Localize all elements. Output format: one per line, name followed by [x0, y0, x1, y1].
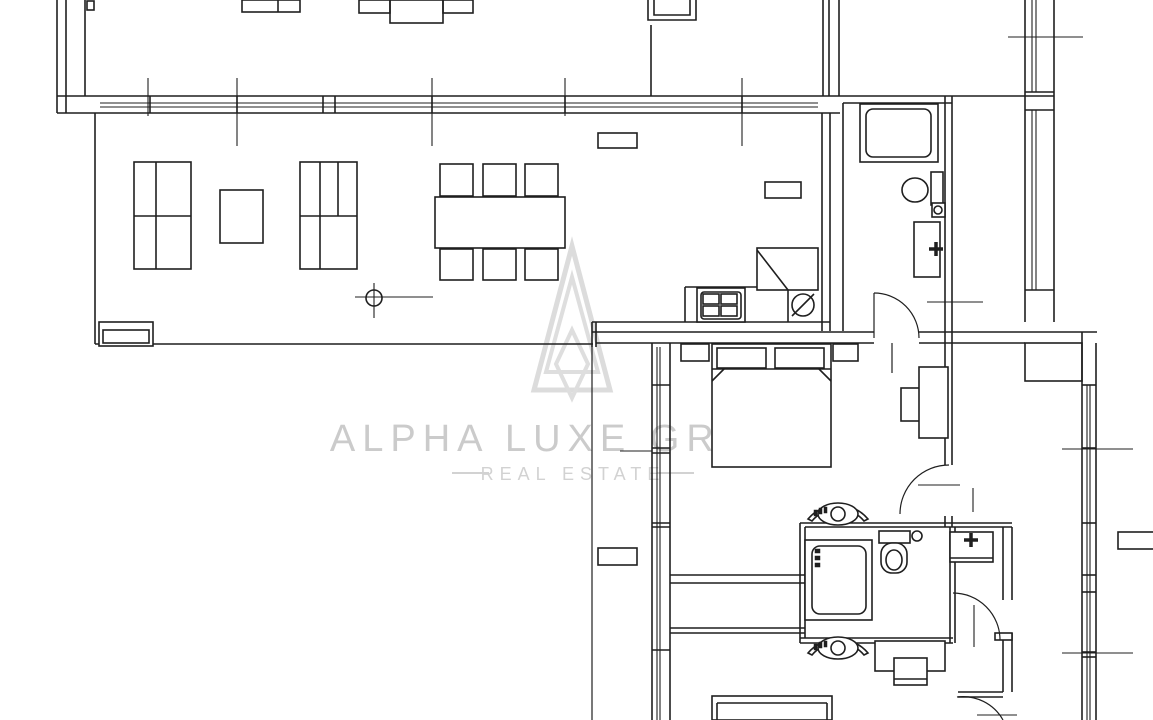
desk1-chair [901, 388, 920, 421]
dining-chair [525, 249, 558, 280]
wardrobe [1025, 343, 1082, 381]
floor-plan-canvas: ALPHA LUXE GROUPREAL ESTATE [0, 0, 1153, 720]
dining-chair [440, 164, 473, 196]
terrace-chair-right [443, 0, 473, 13]
shower2-door-hatch [815, 563, 820, 567]
desk2-chair [894, 658, 927, 685]
sink-hatch [819, 508, 822, 514]
bed2 [712, 696, 832, 720]
sink-hatch [814, 510, 817, 516]
dining-chair [483, 164, 516, 196]
bathroom1-door-arc [874, 293, 919, 338]
radiator [765, 182, 801, 198]
terrace-table [390, 0, 443, 23]
nightstand [833, 344, 858, 361]
dimension-box [1118, 532, 1153, 549]
kitchen-corner-diagonal [757, 250, 788, 290]
kitchen-corner-counter [757, 248, 818, 290]
watermark-subtitle: REAL ESTATE [481, 464, 666, 484]
shower2-door-hatch [815, 549, 820, 553]
floor-plan-page: ALPHA LUXE GROUPREAL ESTATE [0, 0, 1153, 720]
bath2-accessory [912, 531, 922, 541]
dining-chair [440, 249, 473, 280]
coffee-table [220, 190, 263, 243]
desk1 [919, 367, 948, 438]
dining-table [435, 197, 565, 248]
stove [697, 288, 745, 322]
sink-hatch [814, 644, 817, 650]
nightstand [681, 344, 709, 361]
balcony-radiator [598, 548, 637, 565]
bedroom-door-arc [900, 465, 949, 514]
sink-hatch [824, 641, 827, 647]
lower-door-arc [957, 697, 1003, 720]
radiator [598, 133, 637, 148]
dining-chair [525, 164, 558, 196]
terrace-armchair-outer [648, 0, 696, 20]
terrace-bench [242, 0, 300, 12]
toilet1-bowl [902, 178, 928, 202]
shower2-door-hatch [815, 556, 820, 560]
terrace-chair-left [359, 0, 390, 13]
toilet1-tank [931, 172, 943, 205]
sink-hatch [819, 642, 822, 648]
bed1 [712, 344, 831, 467]
toilet2-bowl [881, 543, 907, 573]
shower1-outer [860, 104, 938, 162]
wc-door-arc [953, 593, 1000, 640]
toilet2-tank [879, 531, 910, 543]
terrace-door-handle [87, 1, 94, 10]
sink-hatch [824, 507, 827, 513]
dining-chair [483, 249, 516, 280]
terrace-armchair-inner [654, 0, 690, 15]
wc-wall-cap [995, 633, 1012, 640]
